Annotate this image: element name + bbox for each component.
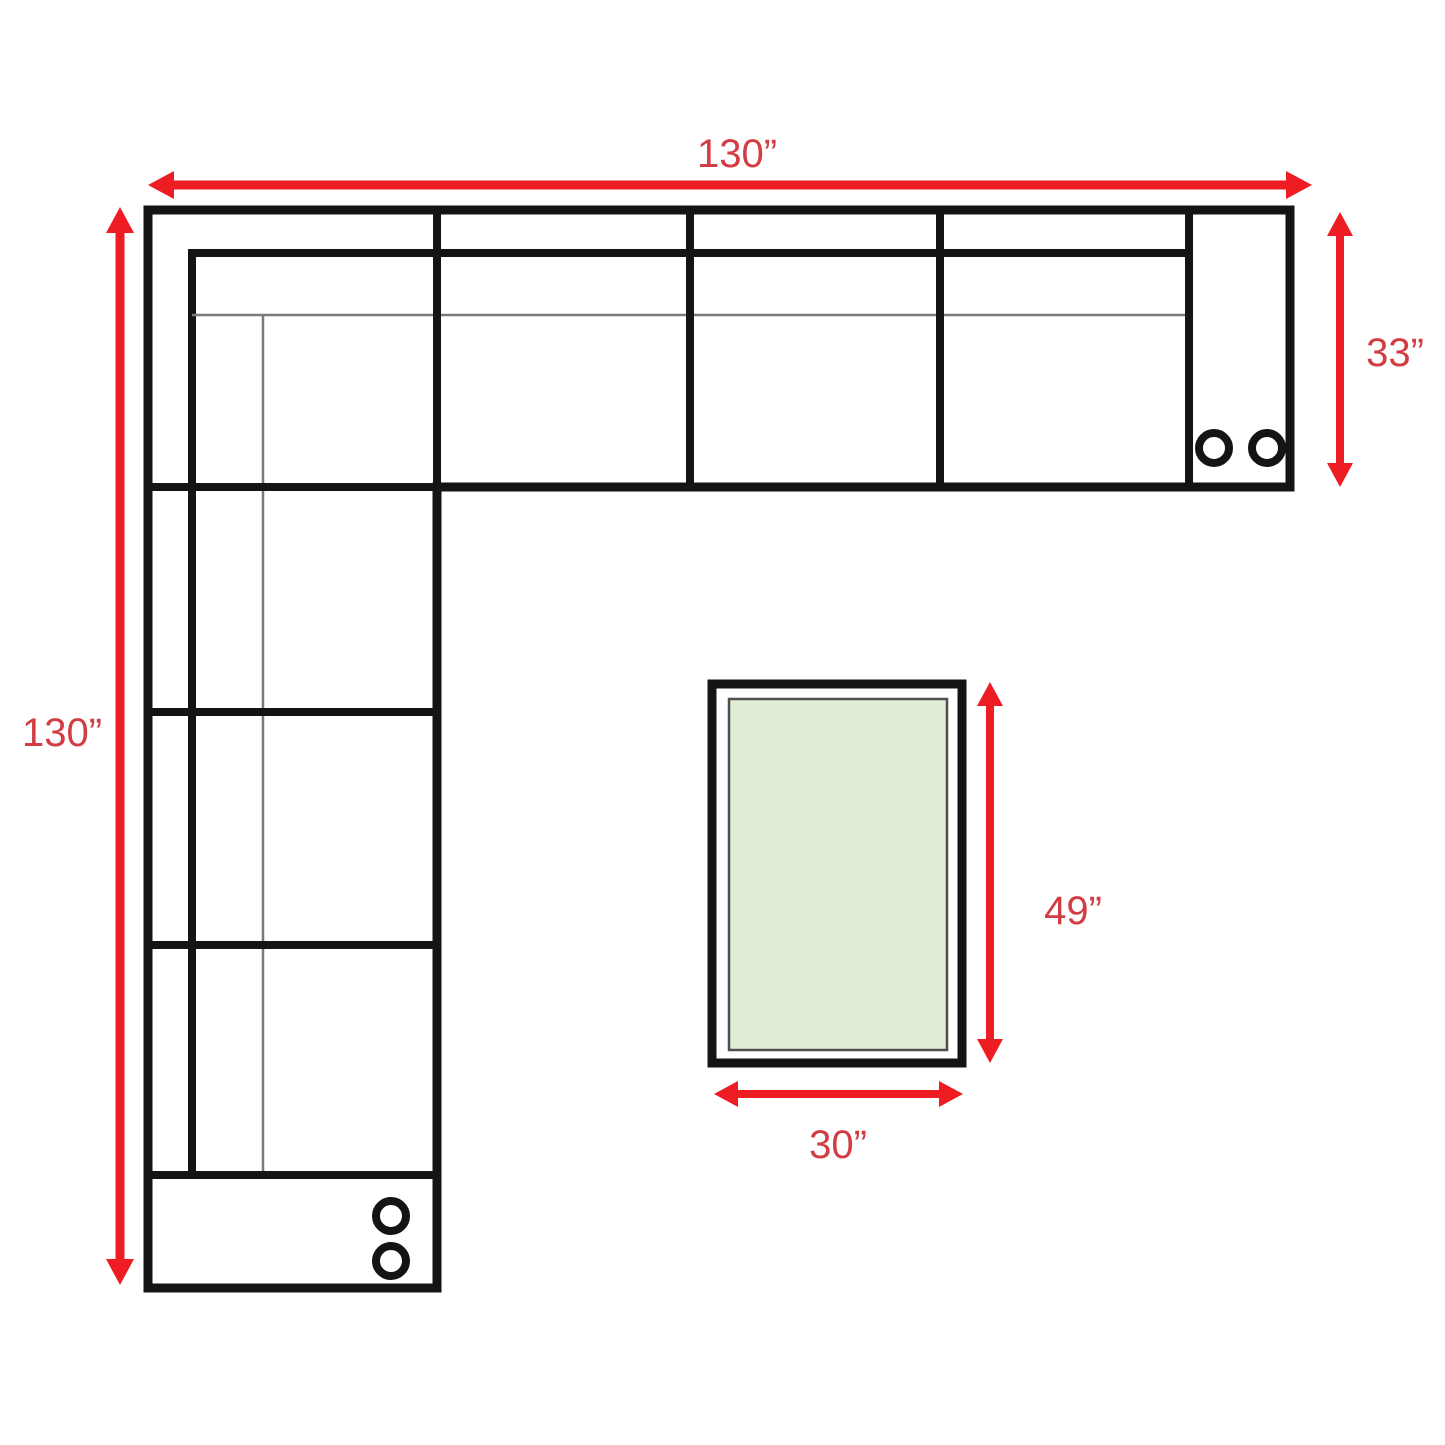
sofa-width-label: 130” [697,132,777,176]
cup-holder-icon [1252,433,1282,463]
cup-holder-icon [376,1201,406,1231]
table-width-label: 30” [809,1123,867,1167]
table-length-label: 49” [1044,889,1102,933]
sofa-depth-label: 33” [1366,331,1424,375]
page-root: 130” 130” 33” 49” 30” [0,0,1445,1445]
accent-table [712,684,962,1063]
cup-holder-icon [1199,433,1229,463]
cup-holder-icon [376,1246,406,1276]
sofa-height-label: 130” [22,711,102,755]
table-top [729,699,947,1050]
floor-plan-canvas: 130” 130” 33” 49” 30” [0,0,1445,1445]
